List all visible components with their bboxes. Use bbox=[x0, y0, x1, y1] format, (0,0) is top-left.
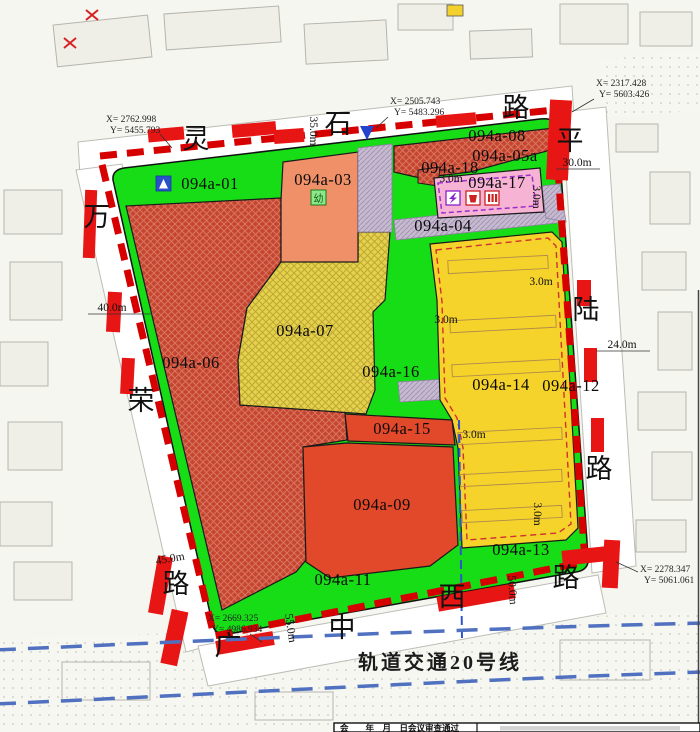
building-outline bbox=[616, 124, 658, 152]
building-outline bbox=[642, 252, 686, 290]
building-outline bbox=[8, 422, 62, 470]
parcel-label-094a-14: 094a-14 bbox=[472, 375, 530, 394]
dim-3m-c: 3.0m bbox=[529, 276, 552, 288]
parcel-label-094a-12: 094a-12 bbox=[542, 376, 600, 395]
street-pinglu-char-0: 平 bbox=[557, 126, 584, 156]
parcel-label-094a-04: 094a-04 bbox=[414, 216, 472, 235]
dim-30m: 30.0m bbox=[562, 157, 591, 169]
kindergarten-icon-label: 幼 bbox=[314, 192, 324, 205]
approval-bar-right-text-faint bbox=[500, 726, 680, 731]
building-outline bbox=[164, 6, 281, 50]
street-guangzhongxi-char-2: 西 bbox=[439, 582, 466, 612]
building-outline bbox=[658, 312, 692, 370]
street-pinglu-char-2: 路 bbox=[586, 454, 613, 484]
approval-bar: 会 年 月 日会议审查通过 bbox=[334, 723, 700, 732]
refuse-station-icon bbox=[466, 191, 480, 205]
building-outline bbox=[10, 262, 62, 320]
building-outline bbox=[304, 20, 388, 64]
legend-chip bbox=[447, 5, 463, 16]
street-guangzhongxi-char-0: 广 bbox=[215, 631, 242, 661]
dim-35m: 35.0m bbox=[307, 116, 319, 145]
dim-50m: 50.0m bbox=[505, 575, 519, 605]
planning-map: 幼 094a-01 094a-03 094a-08 094a-05a 094a-… bbox=[0, 0, 700, 732]
street-wanrong-char-1: 荣 bbox=[128, 386, 155, 416]
street-lingshi-char-0: 灵 bbox=[183, 124, 210, 154]
building-outline bbox=[650, 172, 690, 224]
building-outline bbox=[4, 190, 62, 234]
substation-icon bbox=[446, 191, 460, 205]
coord-y: Y= 5061.061 bbox=[644, 576, 694, 586]
parcel-label-094a-13: 094a-13 bbox=[492, 540, 550, 559]
approval-bar-left-text: 会 年 月 日会议审查通过 bbox=[339, 723, 460, 732]
parcel-label-094a-07: 094a-07 bbox=[276, 321, 334, 340]
parcel-label-094a-11: 094a-11 bbox=[315, 570, 372, 589]
dim-3m-d: 3.0m bbox=[434, 314, 457, 326]
coord-x: X= 2669.325 bbox=[208, 614, 258, 624]
parking-icon bbox=[485, 191, 499, 205]
street-wanrong-char-0: 万 bbox=[84, 202, 111, 232]
road-marking bbox=[602, 540, 620, 589]
parcel-label-094a-15: 094a-15 bbox=[373, 419, 431, 438]
coord-y: Y= 4986.934 bbox=[212, 625, 262, 635]
metro-line-label: 轨道交通20号线 bbox=[358, 650, 522, 674]
map-canvas: 幼 094a-01 094a-03 094a-08 094a-05a 094a-… bbox=[0, 0, 700, 732]
coord-y: Y= 5455.793 bbox=[110, 126, 160, 136]
road-strip-vertical bbox=[358, 144, 392, 232]
road-marking bbox=[274, 128, 305, 144]
dim-3m-b: 3.0m bbox=[530, 185, 542, 208]
coord-x: X= 2317.428 bbox=[596, 79, 646, 89]
street-lingshi-char-2: 路 bbox=[503, 93, 530, 123]
street-pinglu-char-1: 陆 bbox=[573, 295, 600, 325]
coord-y: Y= 5603.426 bbox=[599, 90, 649, 100]
building-outline bbox=[636, 520, 686, 552]
dim-3m-a: 3.0m bbox=[439, 173, 462, 185]
building-outline bbox=[560, 4, 628, 44]
dim-24m: 24.0m bbox=[607, 339, 636, 351]
parcel-label-094a-06: 094a-06 bbox=[162, 353, 220, 372]
building-outline bbox=[638, 392, 686, 430]
building-outline bbox=[14, 562, 72, 600]
parcel-label-094a-05a: 094a-05a bbox=[472, 146, 538, 165]
coord-y: Y= 5483.296 bbox=[394, 108, 444, 118]
road-marking bbox=[591, 418, 604, 452]
greenway-marker-icon bbox=[156, 176, 171, 191]
coord-x: X= 2505.743 bbox=[390, 97, 440, 107]
coord-x: X= 2278.347 bbox=[640, 565, 690, 575]
building-outline bbox=[398, 4, 453, 30]
building-outline bbox=[470, 29, 533, 59]
building-outline bbox=[0, 342, 48, 386]
parcel-label-094a-03: 094a-03 bbox=[294, 170, 352, 189]
parcel-label-094a-17: 094a-17 bbox=[468, 173, 526, 192]
coord-x: X= 2762.998 bbox=[106, 115, 156, 125]
street-guangzhongxi-char-3: 路 bbox=[553, 563, 580, 593]
kindergarten-icon: 幼 bbox=[311, 190, 326, 205]
parcel-094a-03[interactable] bbox=[281, 152, 358, 262]
dim-3m-f: 3.0m bbox=[531, 502, 543, 525]
dim-3m-e: 3.0m bbox=[462, 429, 485, 441]
building-outline bbox=[640, 12, 692, 46]
parcel-label-094a-09: 094a-09 bbox=[353, 495, 411, 514]
street-guangzhongxi-char-1: 中 bbox=[329, 613, 356, 643]
building-outline bbox=[652, 452, 692, 500]
parcel-label-094a-08: 094a-08 bbox=[468, 126, 526, 145]
street-wanrong-char-2: 路 bbox=[163, 569, 190, 599]
street-lingshi-char-1: 石 bbox=[325, 109, 352, 139]
dim-40m: 40.0m bbox=[97, 302, 126, 314]
building-outline bbox=[0, 502, 52, 546]
parcel-label-094a-16: 094a-16 bbox=[362, 362, 420, 381]
parcel-label-094a-01: 094a-01 bbox=[181, 174, 239, 193]
